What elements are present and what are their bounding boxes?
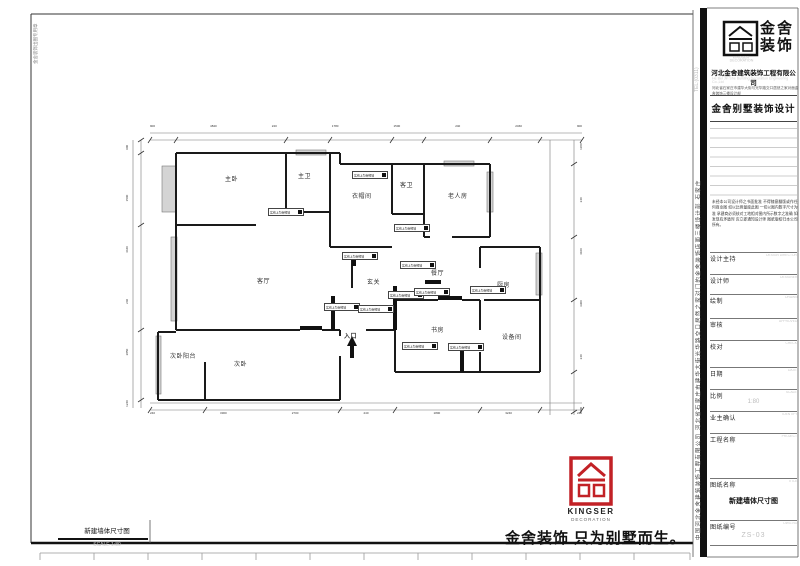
wall-note: 实线上为新砌墙 bbox=[352, 171, 388, 179]
wall-note: 实线上为新砌墙 bbox=[448, 343, 484, 351]
tb-row-check: 校对CHECK bbox=[710, 342, 797, 351]
tb-row-drawn: 绘制DRAWN bbox=[710, 296, 797, 305]
company-side-tel: TEL:(0311) bbox=[694, 67, 700, 92]
room-label-equipment-room: 设备间 bbox=[502, 332, 522, 341]
footer-drawing-scale: SCALE 1:80 bbox=[72, 542, 142, 548]
room-label-master-bedroom: 主卧 bbox=[225, 174, 238, 183]
room-label-study: 书房 bbox=[431, 325, 444, 334]
dim-right: 118024041003300240900 bbox=[578, 145, 585, 410]
wall-note: 实线上为新砌墙 bbox=[324, 303, 360, 311]
tb-row-drawing-no: 图纸编号DWG.NO bbox=[710, 522, 797, 531]
tb-row-drawing-name: 图纸名称TITLE bbox=[710, 480, 797, 489]
tb-row-designer: 设计师DESIGNER bbox=[710, 276, 797, 285]
room-label-living-room: 客厅 bbox=[257, 276, 270, 285]
footer-logo-sub: DECORATION bbox=[565, 517, 617, 522]
wall-note: 实线上为新砌墙 bbox=[358, 305, 394, 313]
wall-note: 实线上为新砌墙 bbox=[342, 252, 378, 260]
drawing-name-value: 新建墙体尺寸图 bbox=[710, 496, 797, 506]
empty-row-lines bbox=[710, 128, 797, 198]
footer-logo-en: KINGSER bbox=[565, 507, 617, 516]
tb-row-project-name: 工程名称PROJECT bbox=[710, 435, 797, 444]
disclaimer-note: 未经本公司设计师之书面批准 不得随意翻版或作任何商业图 如以比例量度此图 一切以… bbox=[712, 200, 800, 246]
brand-en: KINGSER DECORATION bbox=[722, 56, 760, 65]
wall-note: 实线上为新砌墙 bbox=[414, 288, 450, 296]
scale-value: 1:80 bbox=[710, 399, 797, 405]
tb-row-design-director: 设计主持DESIGN DIRECTOR bbox=[710, 254, 797, 263]
room-label-master-bath: 主卫 bbox=[298, 171, 311, 180]
room-label-second-balcony: 次卧阳台 bbox=[170, 351, 196, 360]
stamp-text: 金舍装饰出图专用章 bbox=[33, 24, 39, 65]
entrance-label: 入口 bbox=[344, 331, 357, 340]
footer-drawing-label: 新建墙体尺寸图 bbox=[67, 525, 147, 535]
drawing-sheet: { "plan": { "rooms": { "master_bedroom":… bbox=[0, 0, 800, 566]
room-label-cloakroom: 衣帽间 bbox=[352, 191, 372, 200]
dim-left: 9001500444024028501240 bbox=[124, 145, 131, 405]
room-label-guest-bath: 客卫 bbox=[400, 180, 413, 189]
dim-bottom: 2403300270024018003240240 bbox=[150, 412, 582, 415]
brand-name: 金舍 装饰 bbox=[760, 20, 794, 54]
room-label-elder-room: 老人房 bbox=[448, 191, 468, 200]
room-label-second-bedroom: 次卧 bbox=[234, 359, 247, 368]
company-side-text: 中国河北金舍建筑装饰工程有限公司 河北省石家庄市建华大街光华路交口居然之家对门的… bbox=[694, 179, 702, 540]
kingser-logo-red-icon bbox=[571, 458, 611, 504]
kingser-logo-icon bbox=[724, 22, 757, 55]
wall-note: 实线上为新砌墙 bbox=[402, 342, 438, 350]
floor-plan-drawing bbox=[0, 0, 800, 566]
tb-row-date: 日期DATE bbox=[710, 369, 797, 378]
wall-note: 实线上为新砌墙 bbox=[394, 224, 430, 232]
tb-row-approved: 审核APPROVED bbox=[710, 320, 797, 329]
wall-note: 实线上为新砌墙 bbox=[470, 286, 506, 294]
footer-slogan: 金舍装饰 只为别墅而生。 bbox=[505, 527, 686, 548]
room-label-dining-room: 餐厅 bbox=[431, 268, 444, 277]
dept-title: 金舍别墅装饰设计 bbox=[710, 101, 797, 115]
room-label-foyer: 玄关 bbox=[367, 277, 380, 286]
dim-top: 9004840240178015002402460900 bbox=[150, 125, 582, 128]
drawing-no-value: ZS-03 bbox=[710, 532, 797, 539]
wall-note: 实线上为新砌墙 bbox=[268, 208, 304, 216]
tb-row-owner-confirm: 业主确认IDENTIFY bbox=[710, 413, 797, 422]
wall-note: 实线上为新砌墙 bbox=[400, 261, 436, 269]
